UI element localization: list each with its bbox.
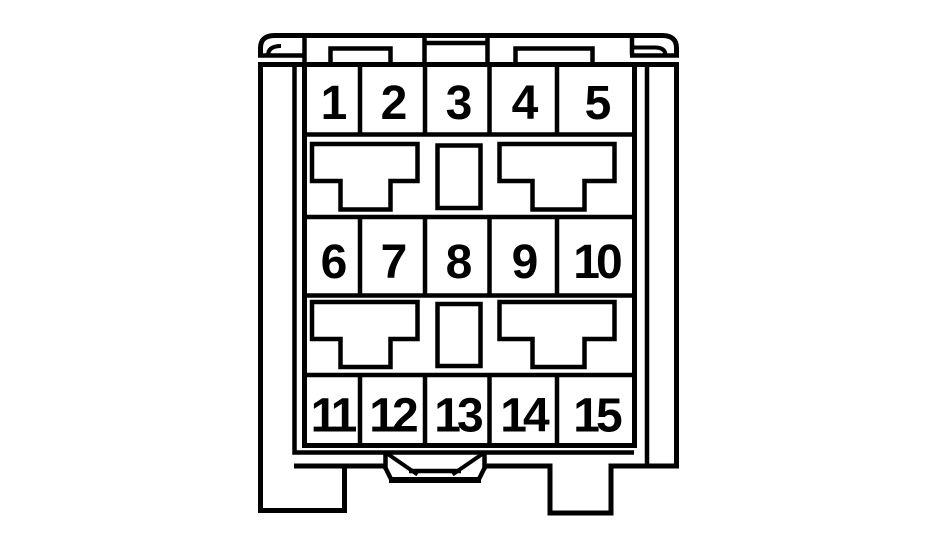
pin-number-6: 6: [321, 236, 346, 289]
connector-face-view: 1 2 3 4 5 6 7 8 9 10 11 12 13 14 15: [0, 0, 928, 552]
pin-number-2: 2: [381, 77, 406, 130]
pin-number-14: 14: [500, 390, 550, 443]
pin-number-3: 3: [446, 77, 471, 130]
pin-number-5: 5: [585, 77, 611, 130]
pin-number-11: 11: [311, 390, 357, 443]
pin-number-10: 10: [573, 236, 621, 289]
pin-number-7: 7: [381, 236, 406, 289]
pin-number-1: 1: [321, 77, 347, 130]
pin-number-13: 13: [434, 390, 482, 443]
pin-number-15: 15: [573, 390, 622, 443]
pin-number-12: 12: [369, 390, 417, 443]
pin-number-9: 9: [512, 236, 537, 289]
pin-number-8: 8: [446, 236, 472, 289]
connector-pinout-diagram: 1 2 3 4 5 6 7 8 9 10 11 12 13 14 15: [0, 0, 928, 552]
